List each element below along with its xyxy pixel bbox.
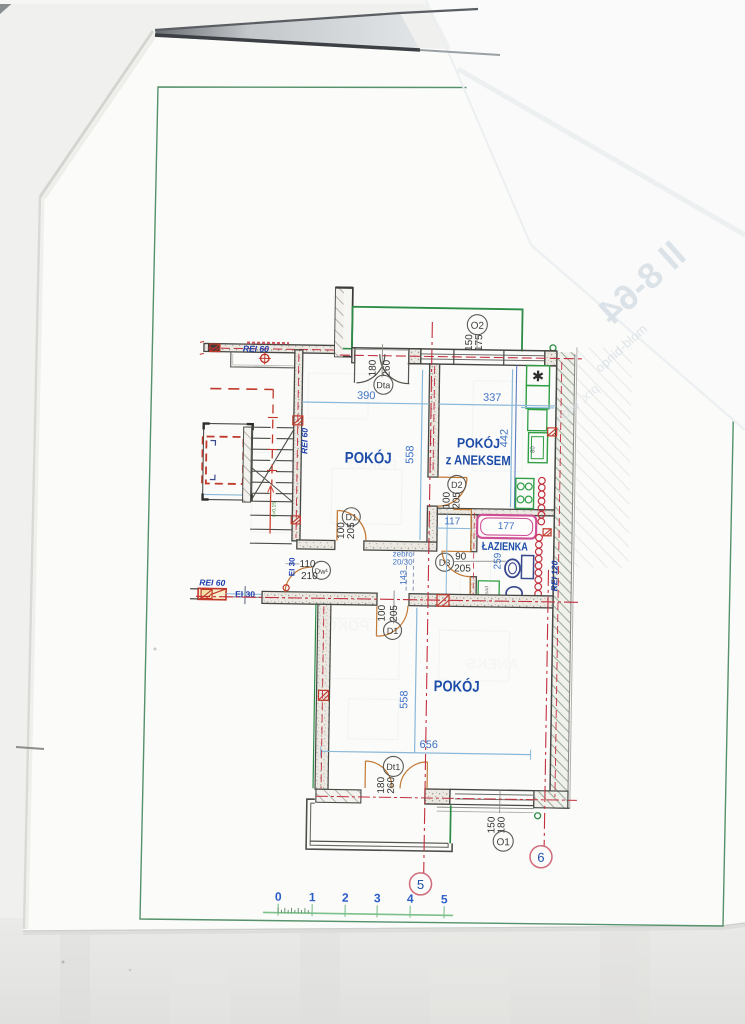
svg-text:POKÓJ: POKÓJ: [457, 435, 500, 451]
svg-text:EI 30: EI 30: [287, 557, 296, 576]
svg-text:558: 558: [398, 690, 410, 709]
svg-text:z ANEKSEM: z ANEKSEM: [446, 452, 511, 468]
svg-text:D3: D3: [439, 558, 451, 568]
svg-text:ŁAZIENKA: ŁAZIENKA: [482, 541, 528, 554]
svg-text:4: 4: [407, 892, 414, 906]
svg-text:390: 390: [357, 390, 376, 402]
svg-text:POKÓJ: POKÓJ: [345, 449, 392, 468]
svg-text:175: 175: [474, 334, 485, 351]
svg-text:205: 205: [451, 492, 462, 509]
svg-text:656: 656: [419, 739, 438, 751]
svg-text:558: 558: [404, 445, 416, 464]
svg-text:110: 110: [299, 559, 316, 570]
svg-text:90: 90: [455, 551, 467, 562]
svg-text:REI 60: REI 60: [243, 344, 269, 354]
svg-text:205: 205: [454, 563, 471, 574]
svg-text:180: 180: [368, 359, 379, 376]
svg-text:143: 143: [398, 570, 408, 585]
svg-text:0: 0: [275, 890, 282, 904]
svg-text:177: 177: [498, 521, 515, 532]
svg-text:POKÓJ: POKÓJ: [434, 677, 480, 696]
svg-text:O1: O1: [496, 837, 510, 848]
svg-text:20/30: 20/30: [393, 557, 414, 566]
svg-text:80: 80: [530, 446, 536, 453]
svg-text:D2: D2: [451, 480, 463, 490]
svg-text:ANEKS: ANEKS: [466, 656, 519, 674]
svg-text:Dta: Dta: [376, 380, 390, 390]
svg-text:210: 210: [301, 571, 318, 582]
svg-text:337: 337: [483, 392, 502, 404]
svg-text:259: 259: [492, 552, 503, 569]
svg-text:5: 5: [441, 892, 448, 906]
svg-text:100: 100: [377, 604, 388, 621]
svg-text:117: 117: [444, 516, 461, 527]
svg-text:260: 260: [382, 359, 393, 376]
svg-text:REI 60: REI 60: [299, 428, 309, 454]
svg-text:D1: D1: [387, 626, 399, 636]
svg-text:442: 442: [498, 429, 510, 448]
svg-text:D1: D1: [345, 512, 357, 522]
svg-text:1: 1: [309, 890, 316, 904]
svg-text:2: 2: [342, 891, 349, 905]
svg-text:3: 3: [374, 891, 381, 905]
svg-text:5: 5: [417, 877, 424, 892]
svg-text:205: 205: [346, 522, 357, 539]
svg-text:Dt1: Dt1: [386, 762, 400, 772]
svg-text:REI 120: REI 120: [549, 560, 559, 591]
svg-text:O2: O2: [471, 321, 485, 332]
svg-text:✱: ✱: [532, 369, 544, 385]
svg-text:205: 205: [389, 605, 400, 622]
svg-text:260: 260: [386, 777, 397, 794]
svg-text:6: 6: [537, 850, 544, 865]
svg-text:REI 60: REI 60: [199, 577, 225, 587]
svg-text:x=0,15: x=0,15: [271, 502, 277, 517]
